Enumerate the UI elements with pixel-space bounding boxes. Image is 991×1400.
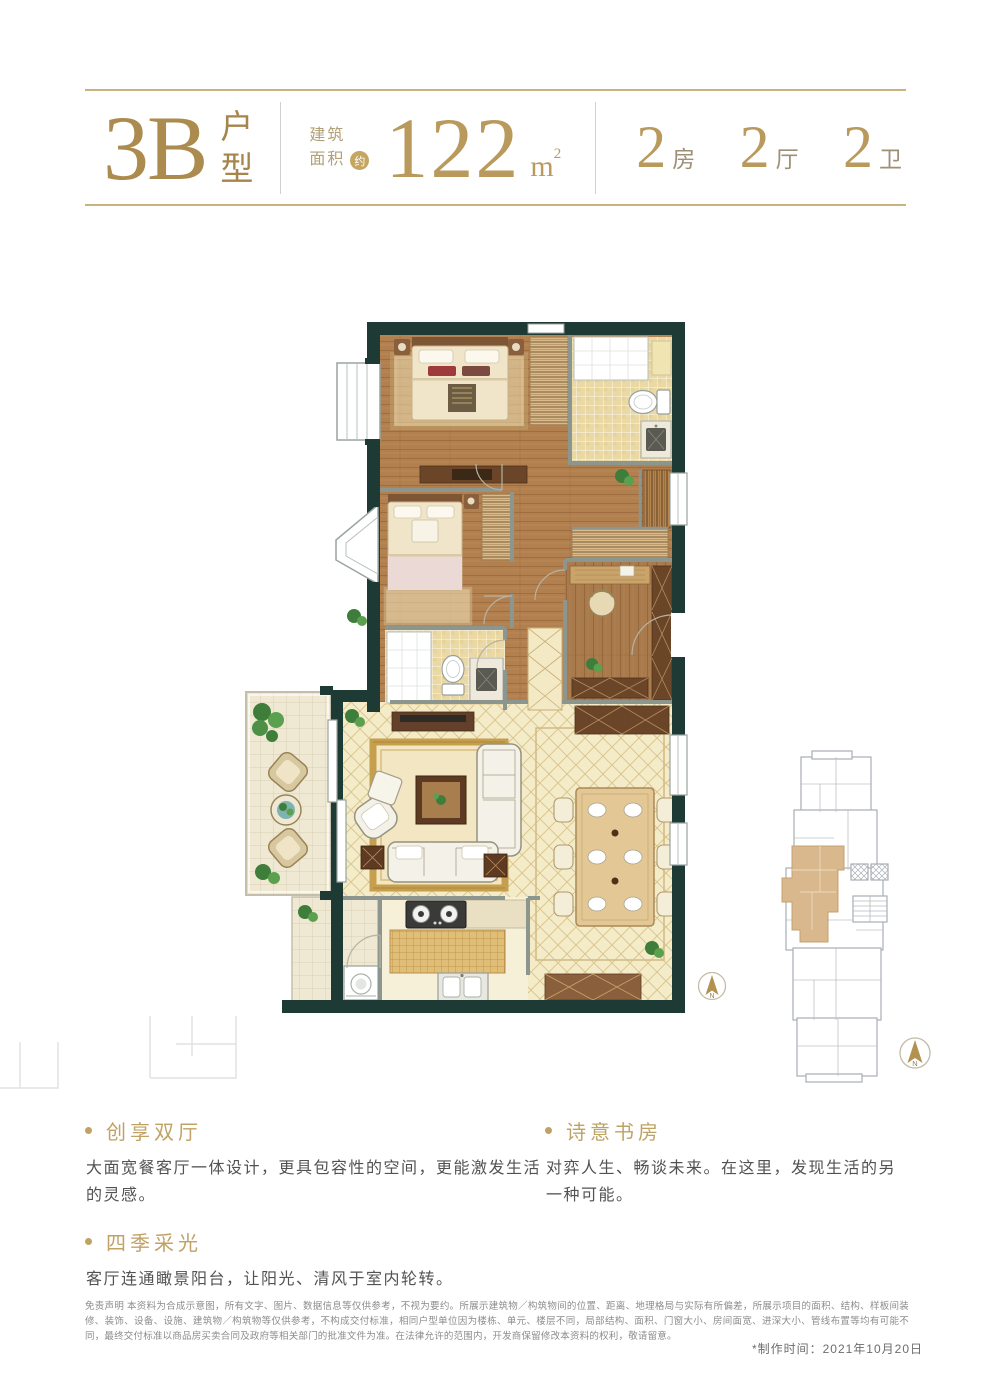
sofa-chaise xyxy=(477,744,521,856)
area-value: 122 xyxy=(385,105,520,191)
toilet-icon xyxy=(629,390,670,414)
bay-window-triangle xyxy=(336,500,380,589)
bullet-icon xyxy=(85,1238,92,1245)
feature-item: 创享双厅 大面宽餐客厅一体设计，更具包容性的空间，更能激发生活的灵感。 xyxy=(85,1108,545,1209)
feature-title: 诗意书房 xyxy=(566,1116,662,1145)
desk-papers xyxy=(620,566,634,576)
keyplan-compass-icon: N xyxy=(900,1038,930,1068)
vanity-sink-icon xyxy=(470,658,503,702)
rug xyxy=(385,588,471,624)
approx-badge: 约 xyxy=(350,151,369,170)
area-unit: m2 xyxy=(530,146,561,184)
features-section: 创享双厅 大面宽餐客厅一体设计，更具包容性的空间，更能激发生活的灵感。 四季采光… xyxy=(85,1108,906,1304)
toilet-icon xyxy=(442,656,464,696)
area-block: 建筑 面积 约 122 m2 xyxy=(309,105,561,191)
top-window xyxy=(528,324,564,333)
feature-title: 四季采光 xyxy=(106,1227,202,1256)
header-bottom-rule xyxy=(85,204,906,206)
rooms-summary: 2房 2厅 2卫 xyxy=(636,113,906,182)
production-date: *制作时间：2021年10月20日 xyxy=(752,1340,923,1357)
stairs xyxy=(853,896,887,922)
room-count-bedrooms: 2房 xyxy=(636,113,695,182)
feature-body: 对弈人生、畅谈未来。在这里，发现生活的另一种可能。 xyxy=(546,1155,906,1209)
unit-block: 3B 户 型 xyxy=(85,102,254,194)
room-count-baths: 2卫 xyxy=(843,113,902,182)
counter xyxy=(466,900,528,928)
feature-title: 创享双厅 xyxy=(106,1116,202,1145)
feature-item: 诗意书房 对弈人生、畅谈未来。在这里，发现生活的另一种可能。 xyxy=(545,1108,906,1209)
balcony-table xyxy=(271,795,301,825)
compass-icon: N xyxy=(699,973,726,1001)
tv xyxy=(400,715,466,722)
bay-window xyxy=(337,358,380,445)
sofa-main xyxy=(388,842,498,882)
header: 3B 户 型 建筑 面积 约 122 m2 2房 2厅 2卫 xyxy=(85,91,906,204)
unit-code: 3B xyxy=(103,102,206,194)
vanity-sink-icon xyxy=(641,421,671,458)
header-divider xyxy=(280,102,281,194)
sideboard xyxy=(575,706,669,734)
feature-body: 客厅连通瞰景阳台，让阳光、清风于室内轮转。 xyxy=(86,1266,545,1293)
floorplan-illustration: N xyxy=(0,300,991,1100)
bottom-cabinet xyxy=(545,974,641,1000)
room-count-halls: 2厅 xyxy=(740,113,799,182)
shower-area xyxy=(574,337,648,380)
area-label: 建筑 面积 xyxy=(309,124,345,170)
dining-table xyxy=(576,788,654,926)
disclaimer-text: 免责声明 本资料为合成示意图，所有文字、图片、数据信息等仅供参考，不视为要约。所… xyxy=(85,1299,909,1345)
stove xyxy=(406,901,466,928)
coffee-table xyxy=(416,776,466,824)
closet xyxy=(643,470,671,528)
service-balcony xyxy=(344,966,378,1000)
study-room xyxy=(565,560,672,700)
bathroom-second xyxy=(385,630,505,705)
elevator-shaft xyxy=(871,864,888,880)
closet xyxy=(572,528,668,559)
header-divider xyxy=(595,102,596,194)
features-left-column: 创享双厅 大面宽餐客厅一体设计，更具包容性的空间，更能激发生活的灵感。 四季采光… xyxy=(85,1108,545,1304)
island-counter xyxy=(390,930,505,973)
features-right-column: 诗意书房 对弈人生、畅谈未来。在这里，发现生活的另一种可能。 xyxy=(545,1108,906,1304)
feature-item: 四季采光 客厅连通瞰景阳台，让阳光、清风于室内轮转。 xyxy=(85,1219,545,1293)
bullet-icon xyxy=(545,1127,552,1134)
kitchen-sink xyxy=(438,973,488,1001)
wardrobe xyxy=(530,337,568,425)
keyplan xyxy=(782,751,888,1082)
bullet-icon xyxy=(85,1127,92,1134)
elevator-shaft xyxy=(851,864,868,880)
feature-body: 大面宽餐客厅一体设计，更具包容性的空间，更能激发生活的灵感。 xyxy=(86,1155,545,1209)
shower-area xyxy=(387,632,431,703)
bathroom-ensuite xyxy=(572,337,672,465)
cabinet xyxy=(572,678,648,698)
ghost-neighbor-outline xyxy=(0,1016,236,1088)
unit-type-label: 户 型 xyxy=(220,106,254,189)
bed xyxy=(388,494,462,590)
washing-machine-icon xyxy=(344,966,378,1000)
bath-niche xyxy=(652,341,671,375)
entry-door xyxy=(671,613,686,657)
floorplan-page: 3B 户 型 建筑 面积 约 122 m2 2房 2厅 2卫 xyxy=(0,0,991,1400)
svg-text:N: N xyxy=(709,993,714,1000)
svg-text:N: N xyxy=(912,1059,917,1068)
wardrobe xyxy=(482,494,512,560)
